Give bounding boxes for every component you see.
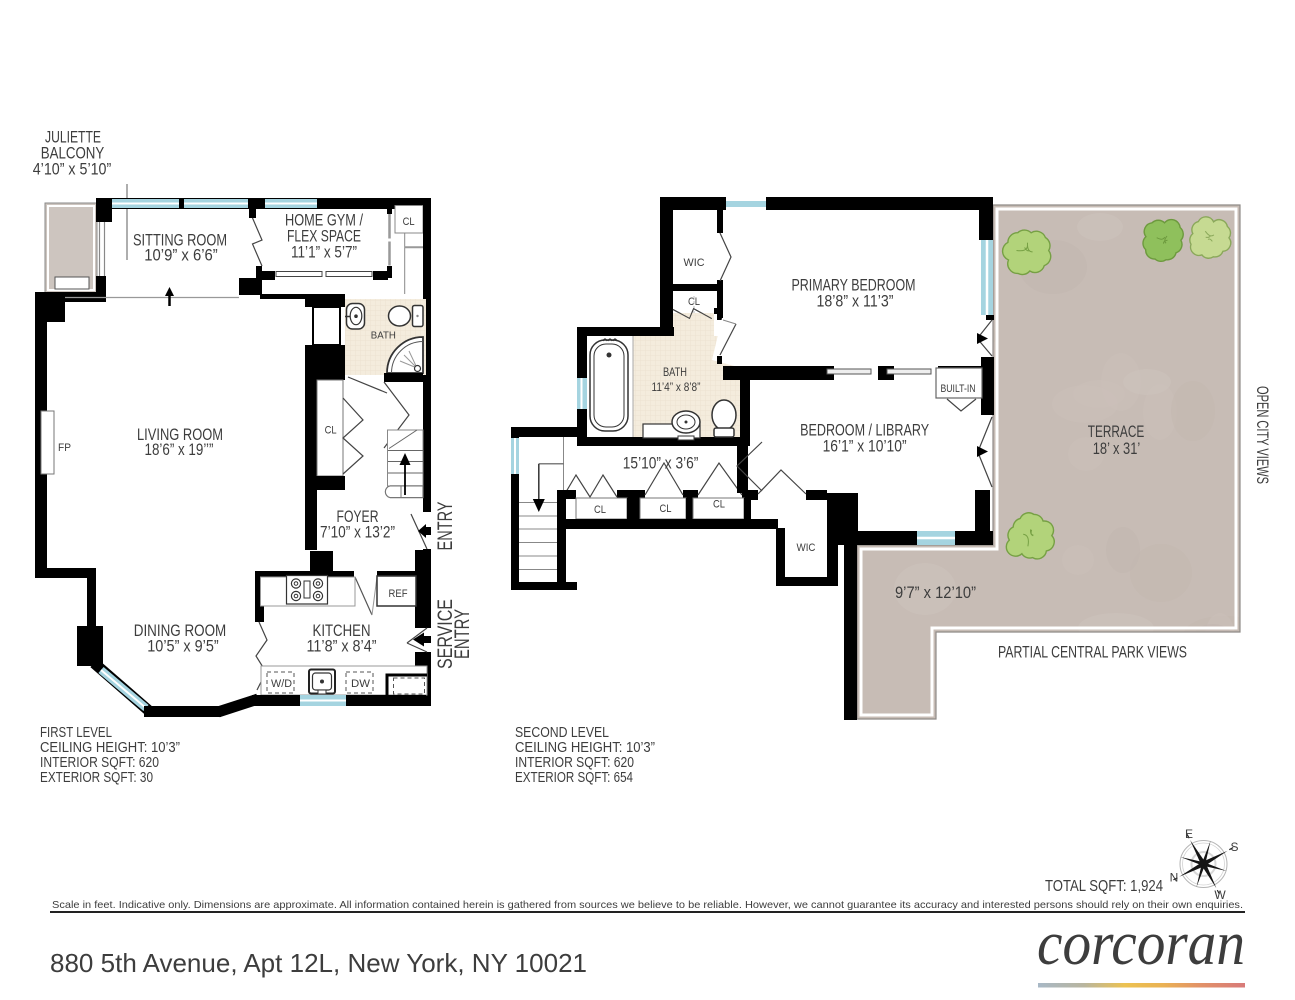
- svg-text:PARTIAL CENTRAL PARK VIEWS: PARTIAL CENTRAL PARK VIEWS: [998, 644, 1187, 662]
- svg-text:ENTRY: ENTRY: [451, 609, 474, 659]
- svg-text:11’1” x 5’7”: 11’1” x 5’7”: [291, 244, 357, 262]
- svg-text:18’8” x 11’3”: 18’8” x 11’3”: [817, 292, 894, 310]
- svg-text:EXTERIOR SQFT: 654: EXTERIOR SQFT: 654: [515, 770, 633, 786]
- svg-text:INTERIOR SQFT: 620: INTERIOR SQFT: 620: [40, 755, 159, 771]
- svg-text:WIC: WIC: [797, 542, 816, 554]
- svg-text:N: N: [1170, 871, 1179, 885]
- svg-text:18’ x 31’: 18’ x 31’: [1093, 440, 1141, 458]
- svg-text:BUILT-IN: BUILT-IN: [941, 383, 976, 395]
- svg-text:7’10” x 13’2”: 7’10” x 13’2”: [320, 524, 395, 542]
- svg-text:10’5” x 9’5”: 10’5” x 9’5”: [147, 638, 219, 656]
- svg-text:FP: FP: [58, 442, 71, 454]
- svg-text:FIRST LEVEL: FIRST LEVEL: [40, 725, 112, 741]
- svg-text:CL: CL: [325, 425, 337, 437]
- svg-text:corcoran: corcoran: [1037, 910, 1245, 978]
- svg-text:TOTAL SQFT: 1,924: TOTAL SQFT: 1,924: [1045, 878, 1163, 895]
- svg-text:CL: CL: [660, 503, 672, 515]
- svg-text:BATH: BATH: [663, 365, 687, 379]
- svg-text:W/D: W/D: [271, 678, 292, 690]
- svg-text:INTERIOR SQFT: 620: INTERIOR SQFT: 620: [515, 755, 634, 771]
- svg-text:TERRACE: TERRACE: [1088, 423, 1145, 441]
- svg-text:10’9” x 6’6”: 10’9” x 6’6”: [144, 247, 218, 265]
- svg-text:E: E: [1185, 827, 1193, 841]
- svg-text:16’1” x 10’10”: 16’1” x 10’10”: [823, 438, 907, 456]
- svg-text:REF: REF: [389, 588, 408, 600]
- svg-text:11’4” x 8’8”: 11’4” x 8’8”: [652, 380, 701, 394]
- svg-text:DW: DW: [351, 678, 371, 690]
- svg-text:OPEN CITY VIEWS: OPEN CITY VIEWS: [1253, 386, 1271, 484]
- svg-text:11’8” x 8’4”: 11’8” x 8’4”: [307, 638, 377, 656]
- svg-text:4’10” x 5’10”: 4’10” x 5’10”: [33, 161, 112, 179]
- svg-text:SECOND LEVEL: SECOND LEVEL: [515, 725, 609, 741]
- svg-text:CEILING HEIGHT: 10’3”: CEILING HEIGHT: 10’3”: [515, 740, 655, 756]
- svg-text:CL: CL: [713, 499, 725, 511]
- svg-text:880 5th Avenue, Apt 12L, New Y: 880 5th Avenue, Apt 12L, New York, NY 10…: [50, 948, 587, 978]
- svg-text:CL: CL: [403, 216, 415, 228]
- svg-text:CEILING HEIGHT: 10’3”: CEILING HEIGHT: 10’3”: [40, 740, 180, 756]
- svg-text:18’6” x 19’’”: 18’6” x 19’’”: [145, 441, 214, 459]
- svg-text:WIC: WIC: [684, 257, 705, 269]
- svg-text:CL: CL: [594, 504, 606, 516]
- svg-text:EXTERIOR SQFT: 30: EXTERIOR SQFT: 30: [40, 770, 153, 786]
- svg-text:ENTRY: ENTRY: [434, 502, 457, 551]
- svg-text:S: S: [1230, 840, 1238, 854]
- svg-text:BATH: BATH: [371, 330, 396, 342]
- svg-text:9’7” x 12’10”: 9’7” x 12’10”: [895, 584, 976, 602]
